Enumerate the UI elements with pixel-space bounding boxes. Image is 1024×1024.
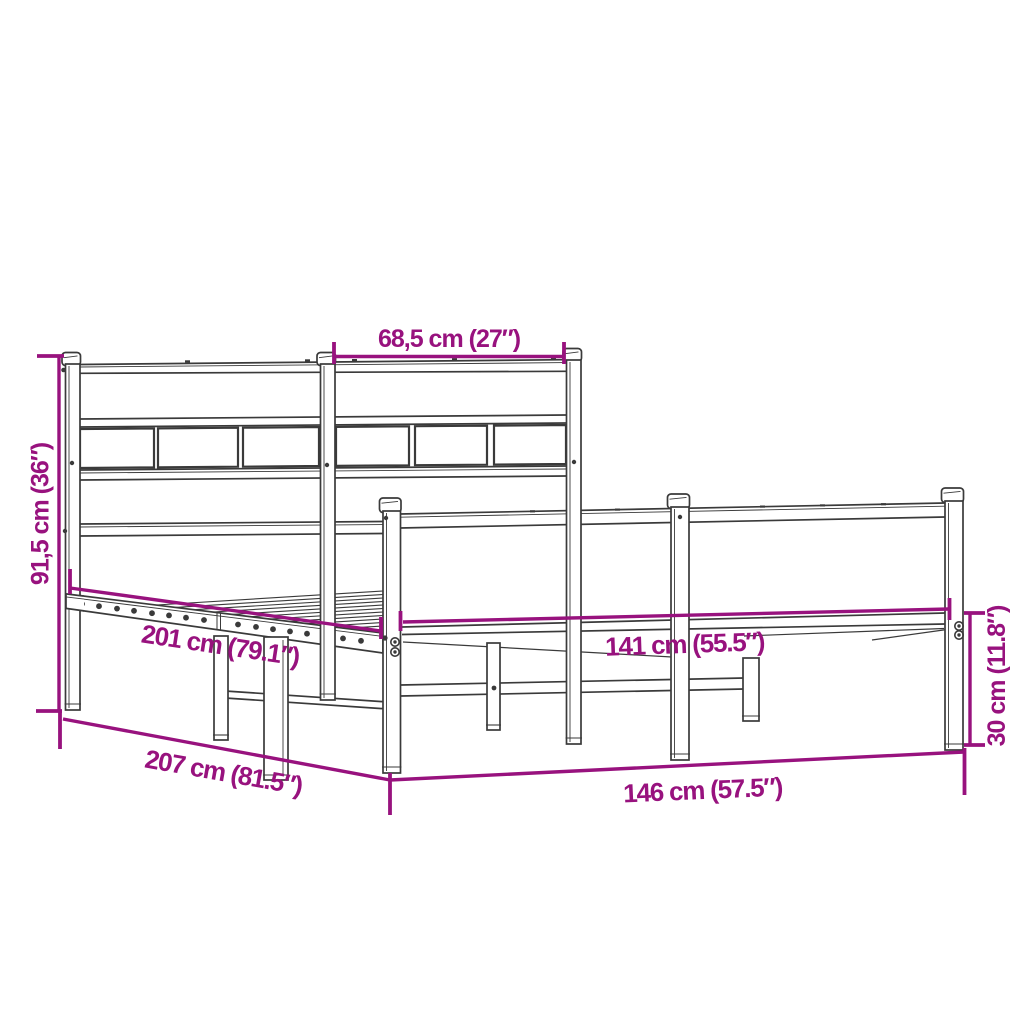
svg-text:30 cm (11.8″): 30 cm (11.8″) xyxy=(983,605,1011,746)
svg-text:68,5 cm (27″): 68,5 cm (27″) xyxy=(378,325,521,353)
svg-text:91,5 cm (36″): 91,5 cm (36″) xyxy=(27,442,55,585)
svg-text:141 cm (55.5″): 141 cm (55.5″) xyxy=(605,626,765,662)
